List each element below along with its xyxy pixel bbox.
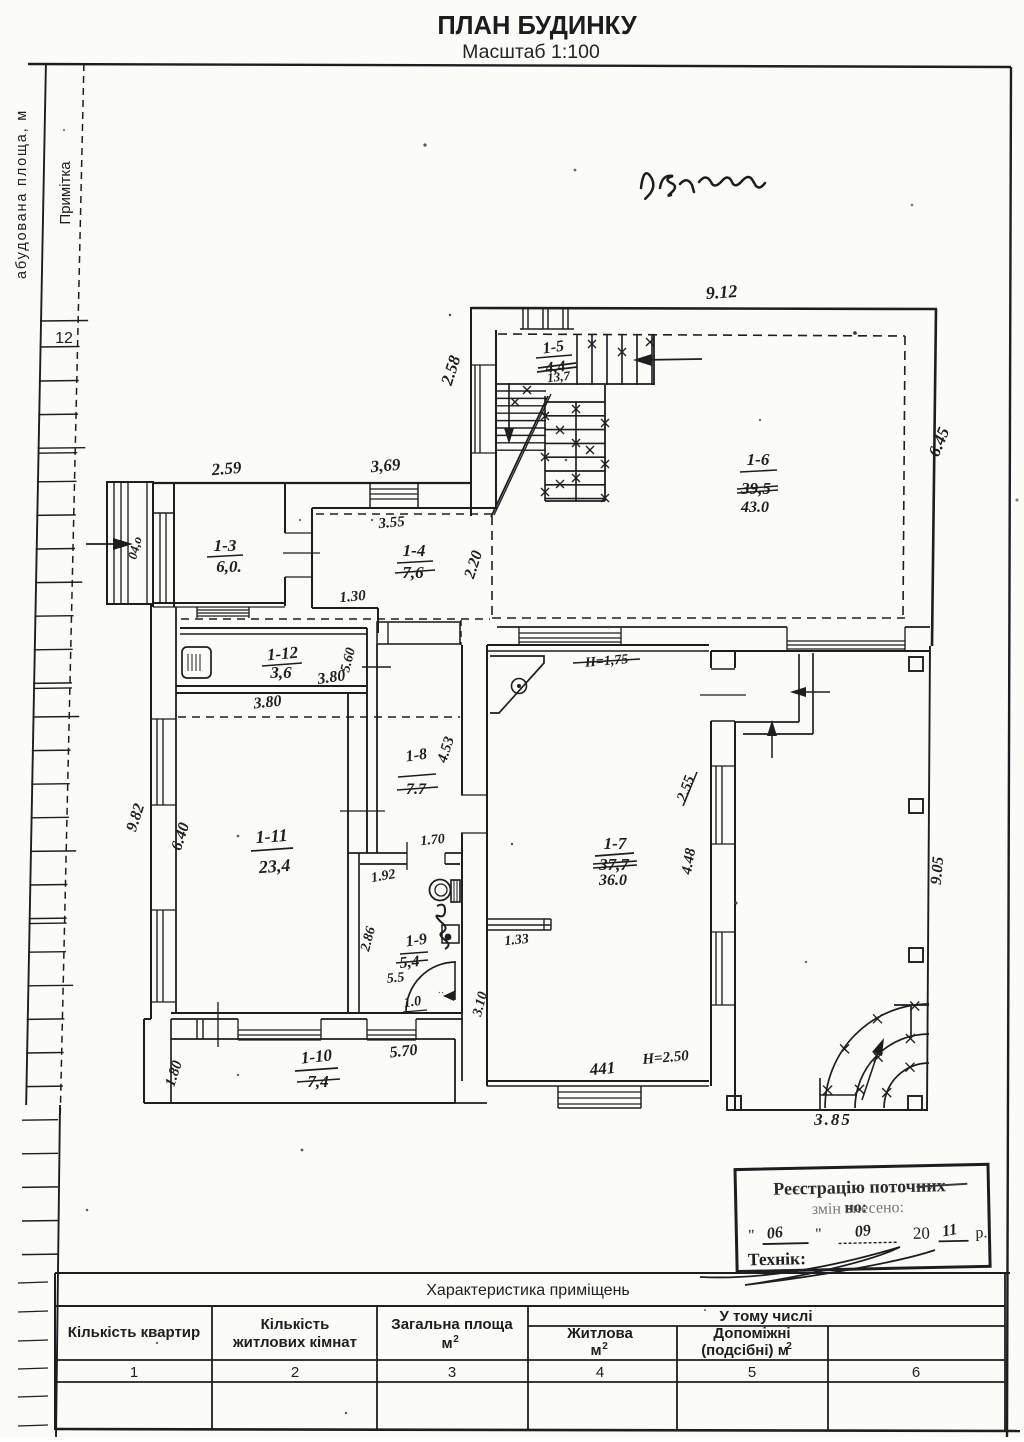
svg-text:3,6: 3,6	[269, 663, 292, 682]
svg-text:1-11: 1-11	[255, 825, 288, 847]
svg-text:3.55: 3.55	[377, 514, 406, 532]
svg-text:": "	[815, 1226, 822, 1243]
svg-text:2: 2	[453, 1334, 459, 1345]
svg-text:1.70: 1.70	[420, 832, 446, 849]
svg-text:2: 2	[291, 1364, 299, 1381]
svg-text:1-9: 1-9	[405, 931, 428, 951]
svg-text:2.59: 2.59	[210, 458, 243, 480]
svg-text:": "	[748, 1227, 755, 1244]
svg-text:м: м	[441, 1335, 452, 1352]
svg-text:43.0: 43.0	[740, 499, 769, 516]
svg-text:6,0.: 6,0.	[216, 557, 242, 576]
svg-text:9.05: 9.05	[928, 856, 947, 885]
svg-text:2: 2	[602, 1341, 608, 1352]
svg-text:12: 12	[55, 330, 73, 347]
svg-text:1-8: 1-8	[405, 746, 428, 766]
svg-text:5.5: 5.5	[386, 970, 405, 987]
svg-text:··: ··	[438, 987, 445, 998]
svg-text:1.33: 1.33	[504, 932, 530, 949]
svg-text:5: 5	[748, 1364, 756, 1381]
svg-text:но:: но:	[844, 1199, 867, 1216]
svg-text:житлових кімнат: житлових кімнат	[232, 1334, 357, 1351]
svg-text:1-12: 1-12	[266, 643, 299, 665]
svg-text:Кількість: Кількість	[261, 1316, 330, 1333]
svg-text:1-3: 1-3	[214, 536, 237, 555]
svg-text:11: 11	[941, 1221, 959, 1240]
svg-text:1-5: 1-5	[542, 338, 565, 358]
svg-text:ПЛАН БУДИНКУ: ПЛАН БУДИНКУ	[437, 12, 638, 40]
svg-text:09: 09	[854, 1222, 872, 1241]
svg-text:3.80: 3.80	[252, 693, 283, 713]
svg-text:23,4: 23,4	[257, 855, 291, 877]
svg-text:1.0: 1.0	[403, 994, 422, 1011]
svg-text:3.85: 3.85	[813, 1110, 852, 1129]
svg-text:441: 441	[588, 1058, 616, 1079]
svg-text:1: 1	[130, 1364, 138, 1381]
svg-text:4: 4	[596, 1364, 604, 1381]
svg-text:9.12: 9.12	[705, 281, 738, 303]
svg-text:1-4: 1-4	[403, 541, 426, 560]
svg-text:р.: р.	[975, 1224, 987, 1241]
svg-text:1-10: 1-10	[300, 1045, 333, 1067]
svg-text:6: 6	[912, 1364, 920, 1381]
svg-text:м: м	[590, 1342, 601, 1359]
svg-text:Примітка: Примітка	[57, 161, 74, 225]
svg-text:13,7: 13,7	[546, 368, 571, 385]
svg-text:36.0: 36.0	[598, 872, 627, 889]
svg-text:абудована площа, м: абудована площа, м	[14, 109, 30, 279]
svg-text:Масштаб 1:100: Масштаб 1:100	[462, 41, 600, 63]
svg-text:Допоміжні: Допоміжні	[713, 1325, 790, 1342]
svg-text:1.30: 1.30	[339, 588, 367, 606]
svg-text:2: 2	[786, 1341, 792, 1352]
svg-text:У тому числі: У тому числі	[720, 1308, 813, 1325]
svg-text:20: 20	[913, 1224, 930, 1243]
svg-text:5.70: 5.70	[389, 1042, 419, 1062]
svg-text:1-7: 1-7	[604, 834, 628, 853]
svg-text:Характеристика приміщень: Характеристика приміщень	[426, 1282, 630, 1299]
svg-text:3,69: 3,69	[369, 455, 402, 477]
svg-text:3: 3	[448, 1364, 456, 1381]
svg-text:1-6: 1-6	[747, 450, 770, 469]
svg-text:Технік:: Технік:	[748, 1248, 806, 1269]
svg-text:(подсібні) м: (подсібні) м	[701, 1342, 789, 1359]
svg-text:Житлова: Житлова	[566, 1325, 633, 1342]
svg-text:Кількість квартир: Кількість квартир	[68, 1324, 200, 1341]
svg-text:Загальна площа: Загальна площа	[391, 1316, 513, 1333]
svg-text:06: 06	[766, 1224, 784, 1243]
